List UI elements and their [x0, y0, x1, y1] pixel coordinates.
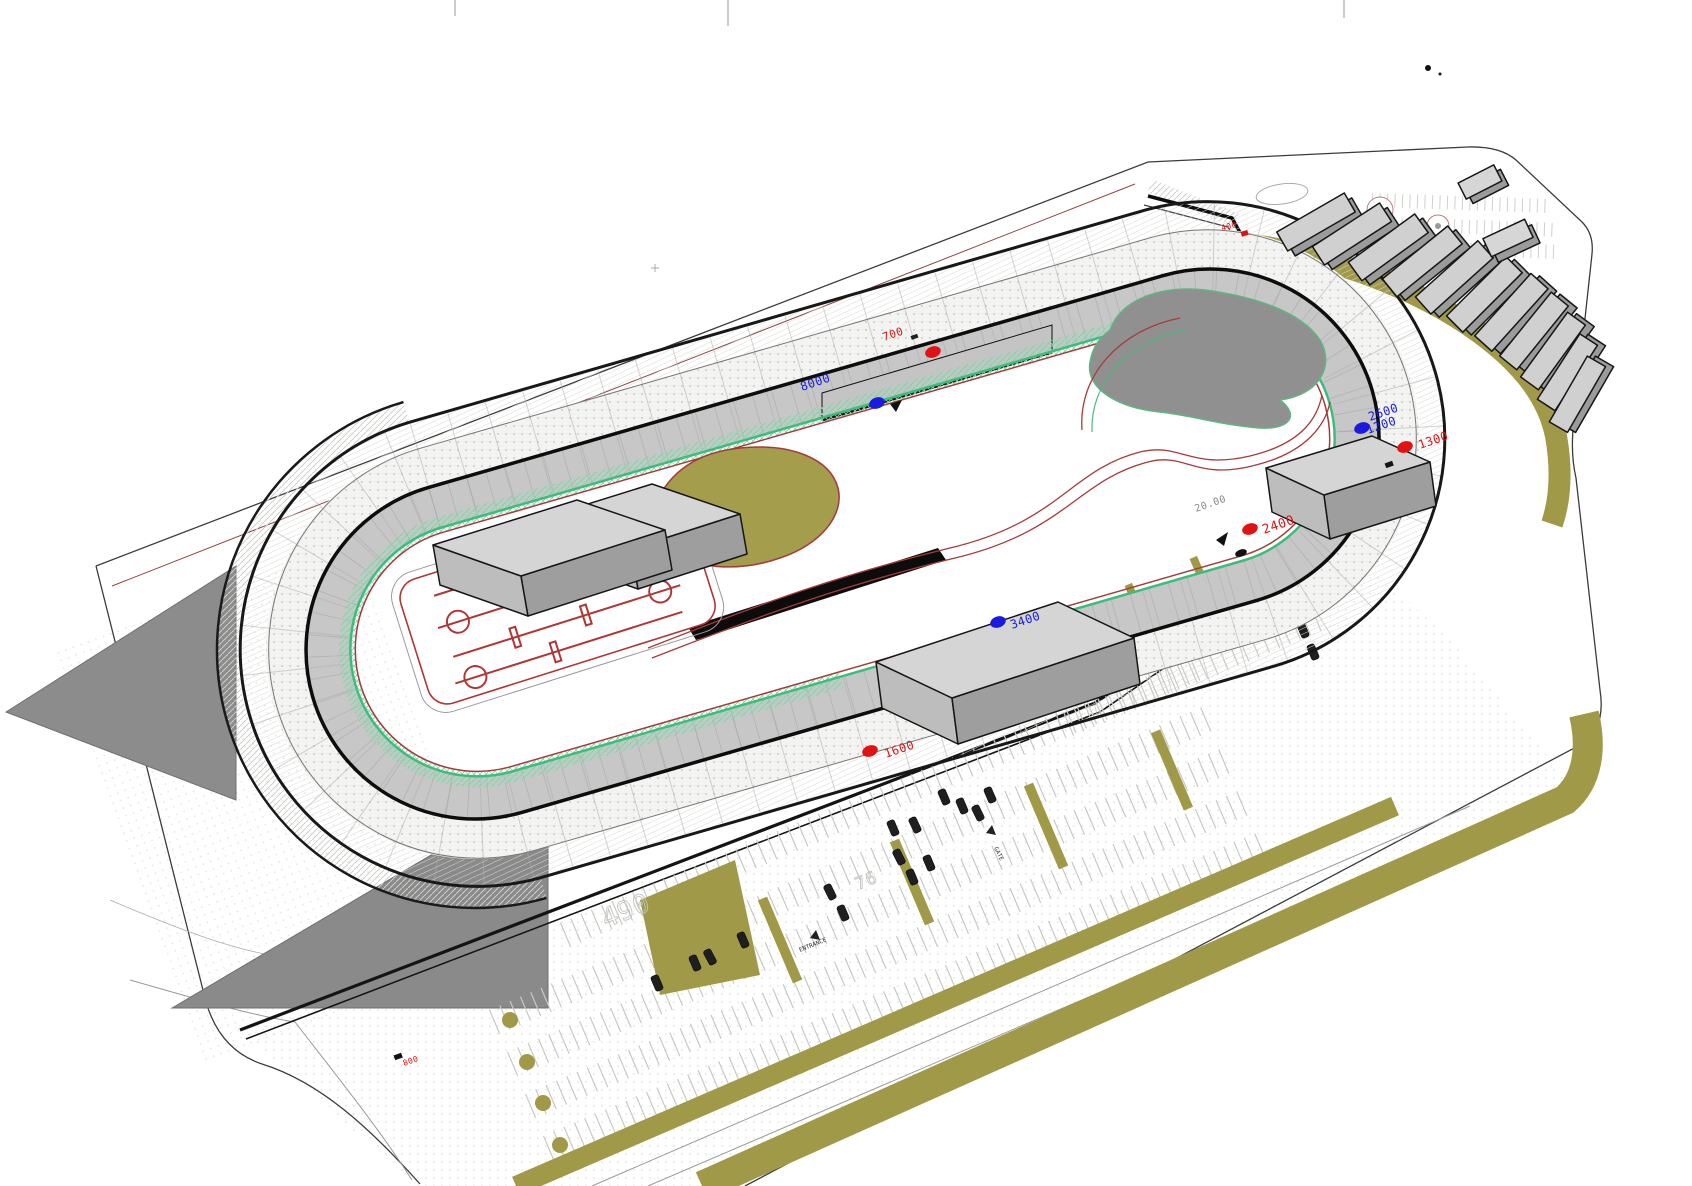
station-dot-red	[1241, 521, 1260, 537]
reference-cross	[651, 264, 659, 272]
small-building	[1458, 163, 1509, 205]
island-cap	[552, 1137, 568, 1153]
island-cap	[535, 1095, 551, 1111]
survey-arrow	[1216, 532, 1228, 546]
site-plan-canvas: 400 700 8000 2600 1200 1300 2400 3400 16…	[0, 0, 1692, 1186]
ink-dot-small	[1439, 73, 1442, 76]
offset-dimension-label: 20.00	[1193, 494, 1227, 515]
tree-dot	[1435, 223, 1441, 229]
site-plan-page: 400 700 8000 2600 1200 1300 2400 3400 16…	[0, 0, 1692, 1186]
stall-row	[1372, 200, 1550, 206]
ink-dot	[1425, 65, 1431, 71]
landscape-ellipse	[1255, 180, 1309, 207]
island-cap	[519, 1054, 535, 1070]
small-building	[1483, 218, 1540, 265]
island-cap	[502, 1012, 518, 1028]
